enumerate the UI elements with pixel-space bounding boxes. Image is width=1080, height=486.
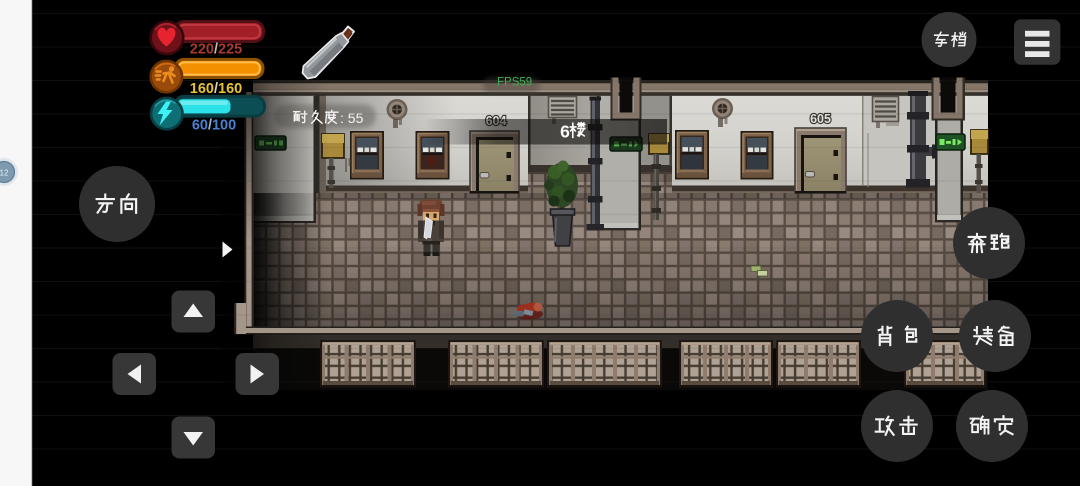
svg-text:FPS59: FPS59 [497, 77, 532, 89]
svg-text:: 55: : 55 [340, 110, 364, 126]
svg-text:6: 6 [560, 122, 570, 142]
svg-text:160/160: 160/160 [190, 81, 242, 97]
svg-text:220/225: 220/225 [190, 42, 242, 58]
svg-text:60/100: 60/100 [192, 118, 236, 134]
svg-text:12: 12 [0, 169, 9, 178]
